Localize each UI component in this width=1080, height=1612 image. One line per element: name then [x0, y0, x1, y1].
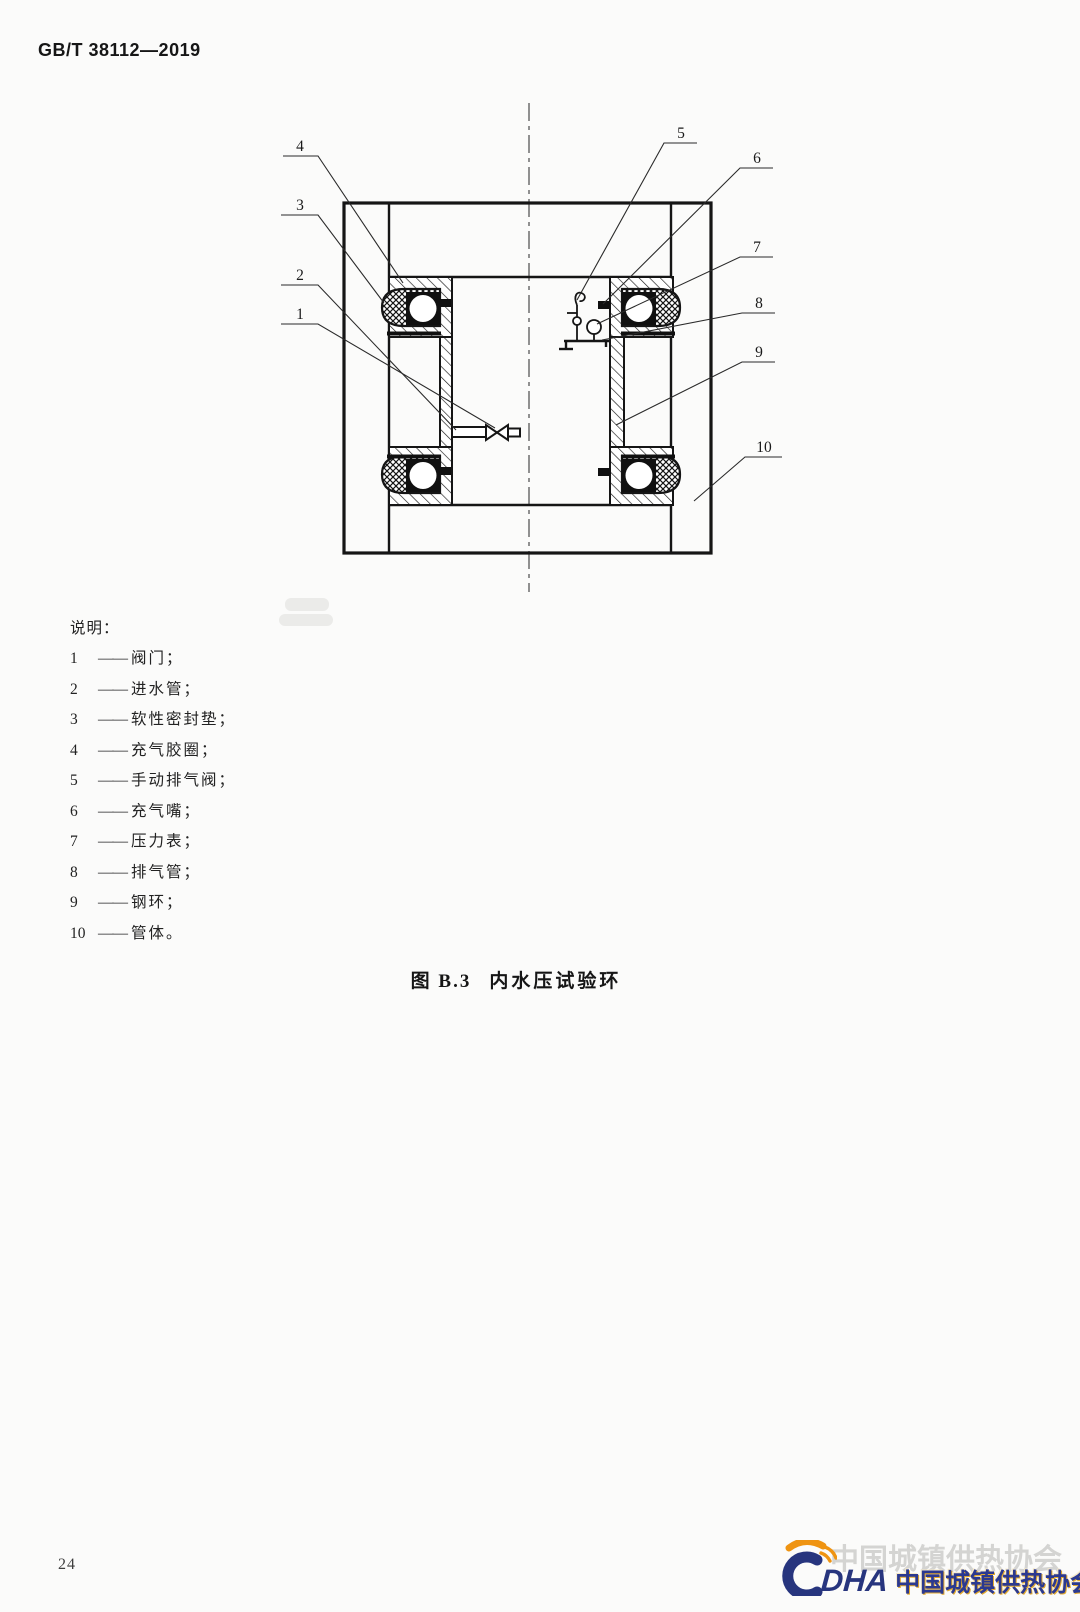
legend-item: 2——进水管； [70, 675, 236, 706]
right-web [610, 337, 624, 447]
nozzle-lower-right [598, 468, 611, 476]
callout-3: 3 [296, 197, 304, 214]
seal-retainer-bars [387, 334, 675, 457]
legend-list: 1——阀门； 2——进水管； 3——软性密封垫； 4——充气胶圈； 5——手动排… [70, 644, 236, 949]
legend-item: 9——钢环； [70, 888, 236, 919]
standard-number-header: GB/T 38112—2019 [38, 40, 201, 61]
inlet-pipe-and-valve [452, 425, 520, 440]
valve-right-triangle [497, 425, 508, 440]
callout-5: 5 [677, 125, 685, 142]
callout-1: 1 [296, 306, 304, 323]
callout-8: 8 [755, 295, 763, 312]
scan-artifact [279, 614, 333, 626]
scan-artifact [285, 598, 329, 611]
legend-item: 6——充气嘴； [70, 797, 236, 828]
callout-numbers: 4 3 2 1 5 6 7 8 9 10 [296, 125, 772, 456]
pressure-gauge [587, 320, 601, 334]
legend-item: 3——软性密封垫； [70, 705, 236, 736]
logo-row: DHA 中国城镇供热协会 [775, 1540, 1080, 1596]
charging-nozzles [439, 299, 611, 476]
legend-item: 1——阀门； [70, 644, 236, 675]
legend-item: 8——排气管； [70, 858, 236, 889]
callout-2: 2 [296, 267, 304, 284]
exhaust-pipe [559, 341, 611, 349]
figure-legend: 说明： 1——阀门； 2——进水管； 3——软性密封垫； 4——充气胶圈； 5—… [70, 614, 236, 949]
legend-item: 4——充气胶圈； [70, 736, 236, 767]
callout-6: 6 [753, 150, 761, 167]
legend-title: 说明： [70, 614, 236, 644]
callout-4: 4 [296, 138, 304, 155]
legend-item: 7——压力表； [70, 827, 236, 858]
callout-10: 10 [756, 439, 772, 456]
figure-title: 内水压试验环 [489, 971, 621, 992]
inlet-pipe [452, 427, 486, 437]
figure-b3-diagram: 4 3 2 1 5 6 7 8 9 10 [250, 90, 810, 605]
figure-number: 图 B.3 [411, 971, 472, 992]
logo-org-name: 中国城镇供热协会 [895, 1571, 1080, 1596]
inlet-stub [508, 429, 520, 437]
test-ring-cross-section: 4 3 2 1 5 6 7 8 9 10 [250, 90, 810, 605]
legend-item: 5——手动排气阀； [70, 766, 236, 797]
callout-7: 7 [753, 239, 761, 256]
page-number: 24 [58, 1556, 76, 1574]
callout-9: 9 [755, 344, 763, 361]
callout-leaders [281, 143, 782, 501]
nozzle-lower-left [439, 467, 451, 475]
figure-caption: 图 B.3内水压试验环 [411, 966, 622, 993]
logo-acronym: DHA [820, 1565, 889, 1596]
left-web [440, 337, 452, 447]
nozzle-upper-left [439, 299, 451, 307]
association-logo: 中国城镇供热协会 DHA 中国城镇供热协会 [775, 1528, 1070, 1596]
legend-item: 10——管体。 [70, 919, 236, 950]
